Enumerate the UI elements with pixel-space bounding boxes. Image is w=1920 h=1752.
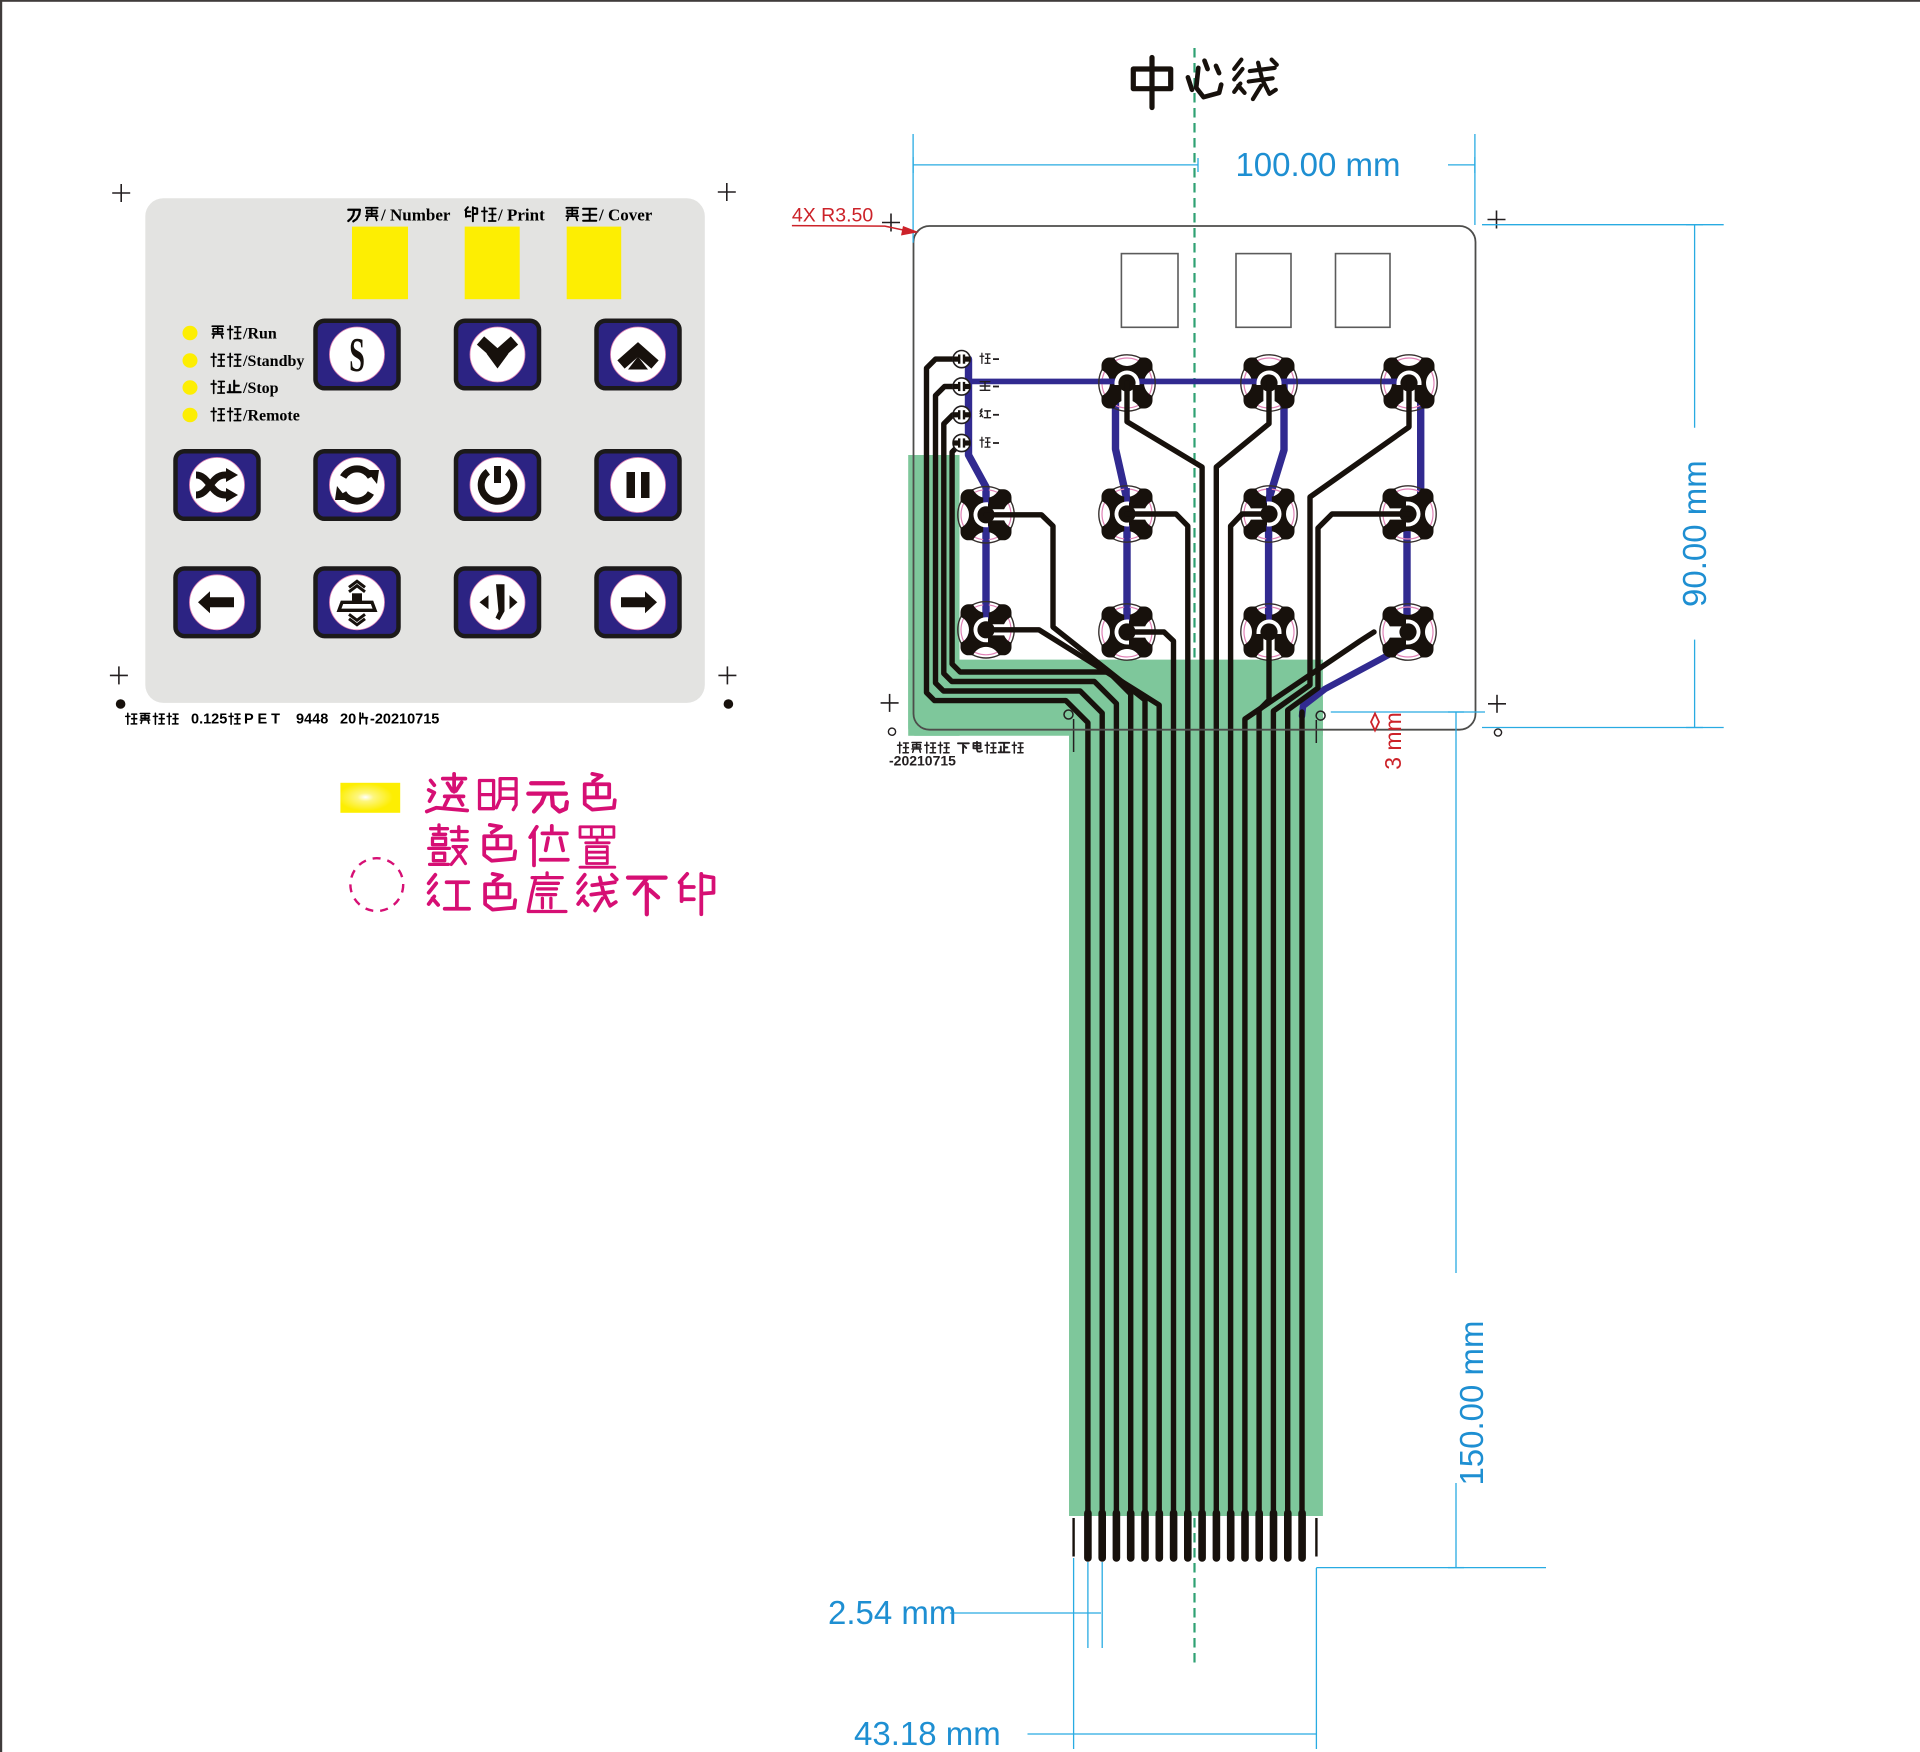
svg-text:150.00 mm: 150.00 mm: [1453, 1320, 1490, 1485]
svg-text:-20210715: -20210715: [889, 753, 956, 769]
svg-text:20: 20: [340, 712, 356, 728]
svg-text:/Run: /Run: [242, 326, 277, 343]
svg-text:/Remote: /Remote: [242, 408, 300, 425]
svg-text:2.54 mm: 2.54 mm: [828, 1594, 956, 1631]
svg-text:/ Print: / Print: [497, 206, 545, 225]
svg-text:3 mm: 3 mm: [1380, 712, 1406, 770]
svg-text:-20210715: -20210715: [370, 712, 439, 728]
svg-text:/Standby: /Standby: [242, 353, 304, 370]
svg-text:0.125: 0.125: [191, 712, 227, 728]
svg-text:100.00 mm: 100.00 mm: [1235, 146, 1400, 183]
svg-text:43.18 mm: 43.18 mm: [854, 1715, 1001, 1752]
svg-text:/Stop: /Stop: [242, 380, 279, 397]
svg-text:P E T: P E T: [244, 712, 280, 728]
svg-text:4X R3.50: 4X R3.50: [792, 205, 873, 227]
svg-text:9448: 9448: [296, 712, 328, 728]
svg-text:/ Cover: / Cover: [598, 206, 653, 225]
svg-text:90.00 mm: 90.00 mm: [1676, 460, 1713, 607]
svg-text:S: S: [349, 327, 365, 382]
svg-text:/ Number: / Number: [380, 206, 451, 225]
